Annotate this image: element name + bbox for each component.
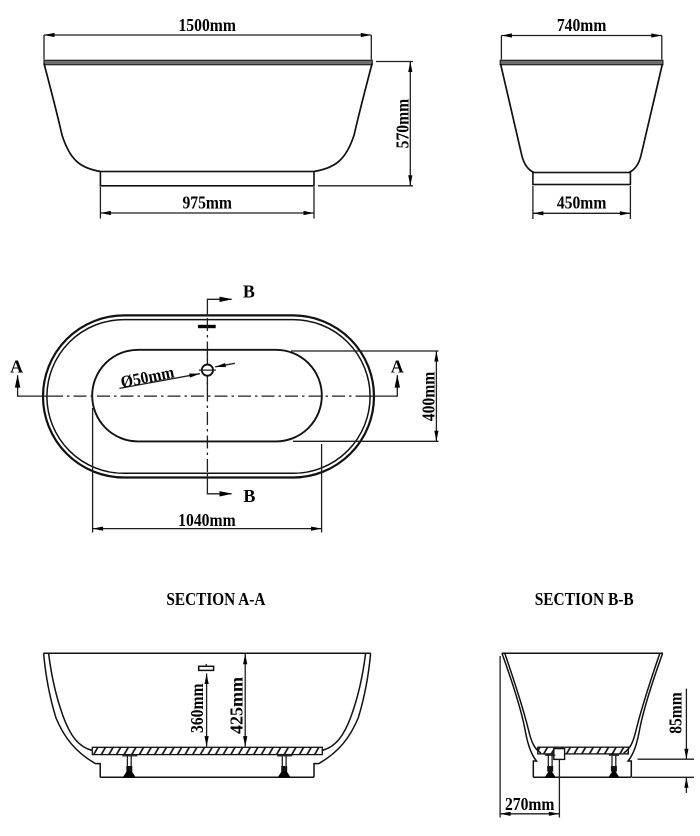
svg-text:1040mm: 1040mm [178, 510, 236, 530]
svg-text:270mm: 270mm [505, 794, 555, 814]
svg-text:A: A [391, 356, 404, 376]
svg-text:450mm: 450mm [557, 193, 607, 213]
svg-text:A: A [10, 356, 23, 376]
svg-text:400mm: 400mm [418, 372, 438, 422]
svg-text:1500mm: 1500mm [178, 15, 236, 35]
svg-text:570mm: 570mm [392, 99, 412, 149]
svg-text:B: B [243, 281, 255, 301]
svg-text:B: B [243, 486, 255, 506]
svg-text:360mm: 360mm [187, 683, 207, 733]
svg-text:975mm: 975mm [182, 193, 232, 213]
svg-text:740mm: 740mm [557, 15, 607, 35]
svg-text:425mm: 425mm [226, 677, 246, 734]
svg-text:SECTION A-A: SECTION A-A [166, 589, 265, 609]
svg-text:85mm: 85mm [666, 692, 686, 734]
svg-text:SECTION B-B: SECTION B-B [535, 589, 634, 609]
